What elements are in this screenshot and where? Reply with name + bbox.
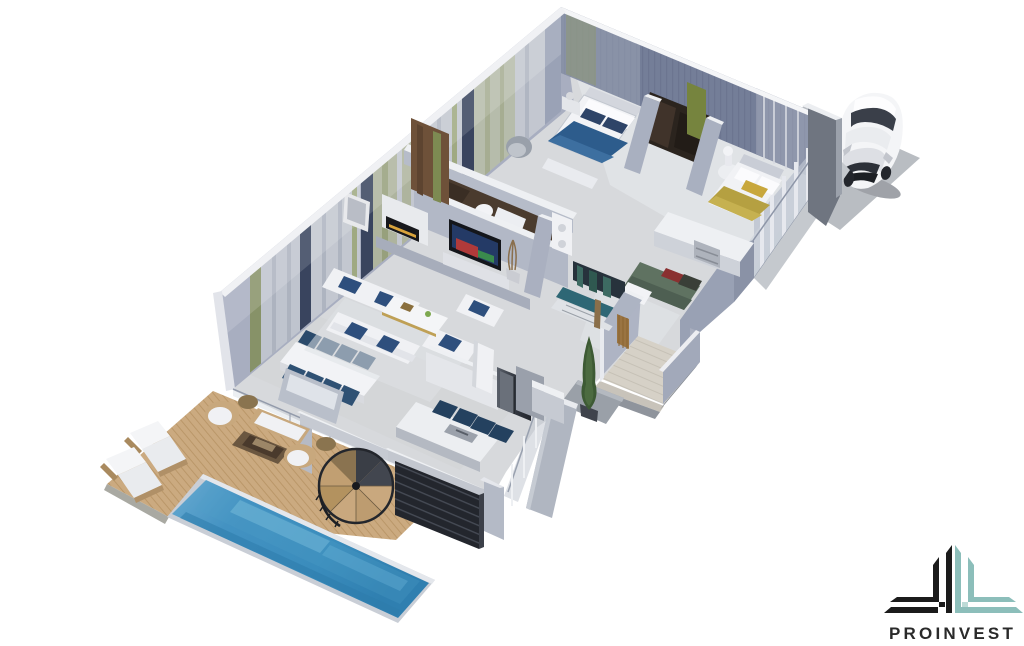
svg-text:PROINVEST: PROINVEST xyxy=(889,624,1016,643)
